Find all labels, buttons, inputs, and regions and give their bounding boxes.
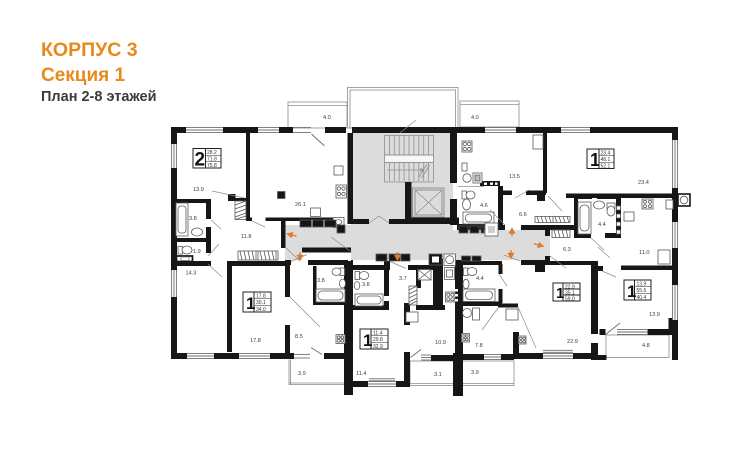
svg-text:32.9: 32.9 xyxy=(373,344,383,350)
svg-text:26.1: 26.1 xyxy=(295,202,306,208)
svg-text:3.7: 3.7 xyxy=(399,276,407,282)
svg-text:23.4: 23.4 xyxy=(638,180,649,186)
svg-text:3.8: 3.8 xyxy=(362,282,370,288)
svg-text:1: 1 xyxy=(363,331,372,350)
svg-text:4.0: 4.0 xyxy=(323,115,331,121)
svg-text:40.4: 40.4 xyxy=(637,295,647,301)
svg-text:34.0: 34.0 xyxy=(256,307,266,313)
svg-text:29.8: 29.8 xyxy=(373,337,383,343)
svg-text:75.8: 75.8 xyxy=(207,163,217,169)
svg-text:4.4: 4.4 xyxy=(598,222,606,228)
svg-text:23.4: 23.4 xyxy=(601,151,611,157)
svg-text:4.0: 4.0 xyxy=(471,115,479,121)
svg-text:13.9: 13.9 xyxy=(193,187,204,193)
svg-text:48.1: 48.1 xyxy=(601,157,611,163)
svg-text:11.4: 11.4 xyxy=(356,371,366,377)
svg-text:30.1: 30.1 xyxy=(256,300,266,306)
svg-text:3.1: 3.1 xyxy=(434,372,442,378)
svg-text:14.3: 14.3 xyxy=(186,271,197,277)
svg-text:22.9: 22.9 xyxy=(567,339,578,345)
svg-text:Секция 1: Секция 1 xyxy=(41,65,126,86)
svg-text:10.9: 10.9 xyxy=(435,340,446,346)
svg-text:1: 1 xyxy=(627,282,636,301)
svg-text:13.9: 13.9 xyxy=(649,312,660,318)
svg-text:55.6: 55.6 xyxy=(637,288,647,294)
svg-text:59.0: 59.0 xyxy=(565,296,575,302)
svg-text:6.3: 6.3 xyxy=(563,247,571,253)
svg-text:13.5: 13.5 xyxy=(509,174,520,180)
svg-text:11.0: 11.0 xyxy=(639,250,649,256)
svg-text:11.4: 11.4 xyxy=(373,331,383,337)
svg-text:7.8: 7.8 xyxy=(475,343,483,349)
svg-text:17.8: 17.8 xyxy=(250,338,261,344)
svg-text:1.9: 1.9 xyxy=(193,249,201,255)
svg-text:17.8: 17.8 xyxy=(256,294,266,300)
svg-text:4.6: 4.6 xyxy=(480,203,488,209)
svg-text:11.8: 11.8 xyxy=(241,234,251,240)
svg-text:71.8: 71.8 xyxy=(207,157,217,163)
svg-text:13.9: 13.9 xyxy=(637,282,647,288)
svg-text:8.5: 8.5 xyxy=(295,334,303,340)
svg-text:1: 1 xyxy=(590,150,600,170)
svg-text:4.8: 4.8 xyxy=(642,343,650,349)
svg-text:52.1: 52.1 xyxy=(601,164,611,170)
svg-text:3.8: 3.8 xyxy=(189,216,197,222)
svg-text:6.6: 6.6 xyxy=(519,212,527,218)
svg-text:3.9: 3.9 xyxy=(298,371,306,377)
svg-text:2: 2 xyxy=(195,150,206,171)
svg-text:4.4: 4.4 xyxy=(476,276,484,282)
svg-text:1: 1 xyxy=(246,294,255,313)
svg-text:3.8: 3.8 xyxy=(317,278,325,284)
svg-text:28.2: 28.2 xyxy=(207,150,217,156)
svg-text:1: 1 xyxy=(556,285,564,302)
svg-text:3.9: 3.9 xyxy=(471,370,479,376)
svg-text:План 2-8 этажей: План 2-8 этажей xyxy=(41,89,157,105)
svg-text:КОРПУС 3: КОРПУС 3 xyxy=(41,39,138,61)
